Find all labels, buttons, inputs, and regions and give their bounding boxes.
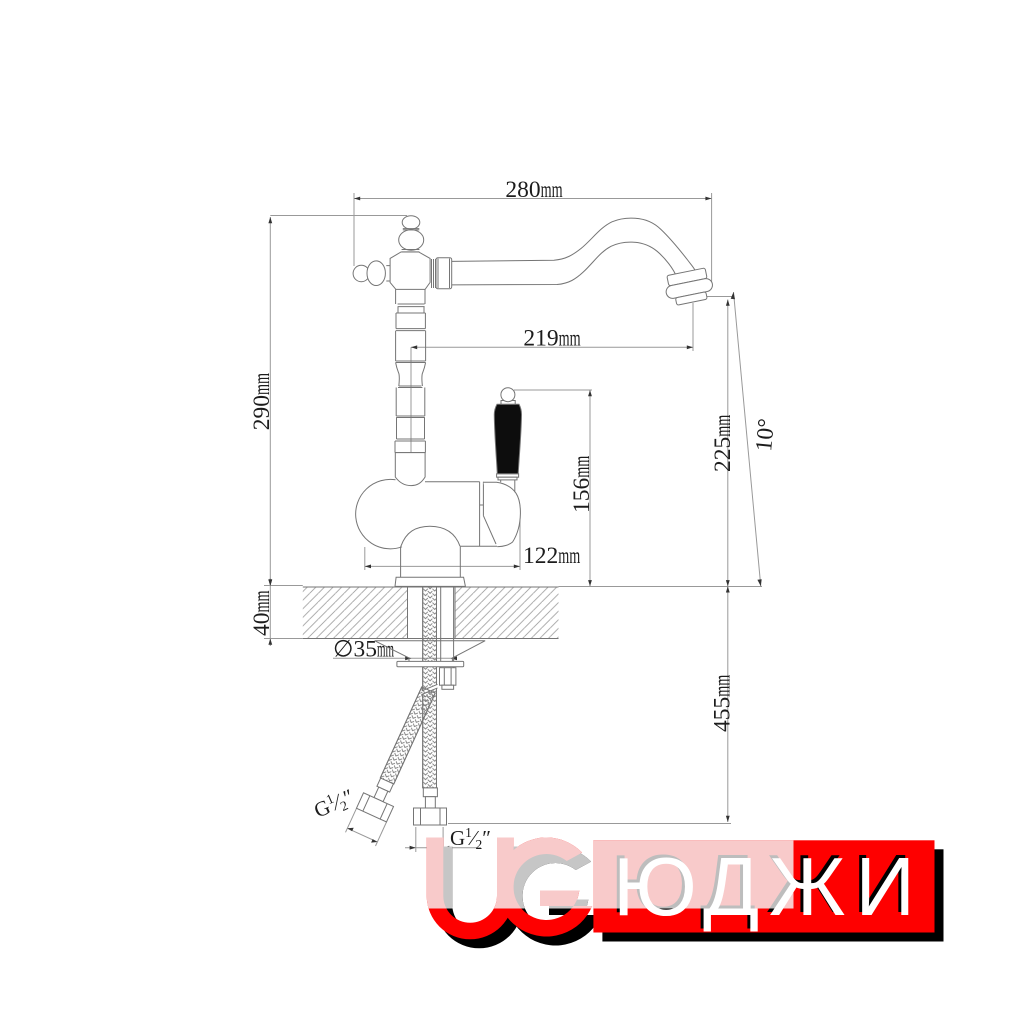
svg-text:455mm: 455mm xyxy=(710,675,736,732)
svg-text:40mm: 40mm xyxy=(249,591,275,637)
svg-text:225mm: 225mm xyxy=(710,415,736,472)
svg-text:290mm: 290mm xyxy=(249,373,275,430)
svg-text:156mm: 156mm xyxy=(569,456,595,513)
svg-text:219mm: 219mm xyxy=(523,325,580,351)
svg-text:10°: 10° xyxy=(751,417,780,452)
svg-text:122mm: 122mm xyxy=(523,543,580,569)
svg-text:280mm: 280mm xyxy=(505,177,562,203)
